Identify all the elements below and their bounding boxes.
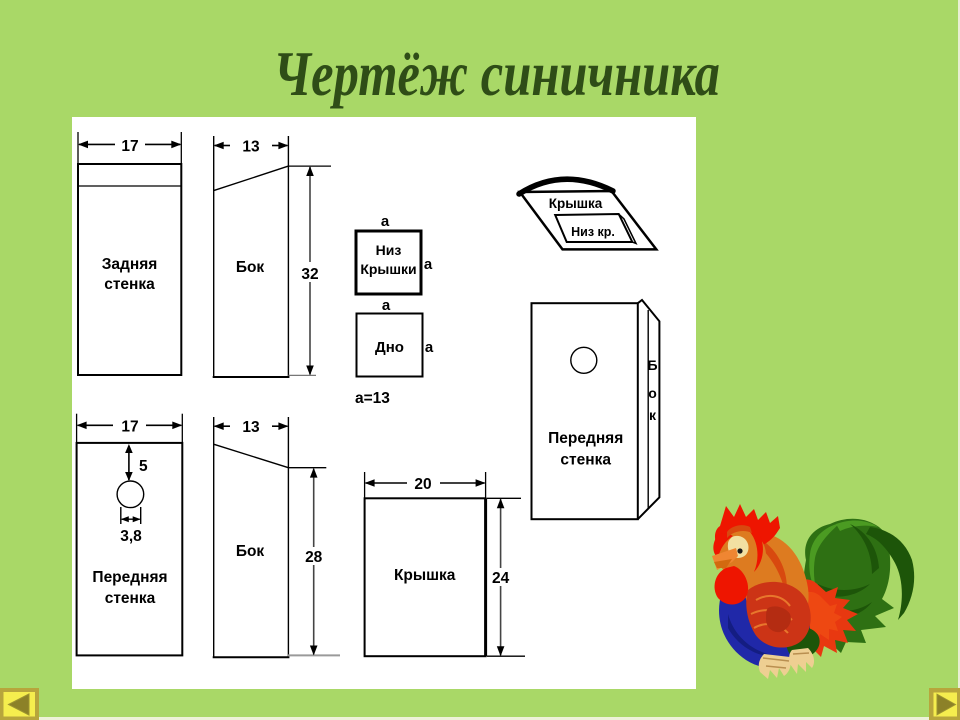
svg-text:Задняя: Задняя	[102, 256, 158, 273]
svg-text:а: а	[381, 213, 390, 230]
svg-text:а: а	[424, 256, 433, 273]
svg-text:Передняя: Передняя	[548, 430, 623, 447]
svg-text:стенка: стенка	[104, 276, 155, 293]
svg-text:о: о	[648, 385, 657, 401]
svg-text:32: 32	[301, 266, 318, 283]
svg-text:17: 17	[121, 419, 138, 436]
svg-text:к: к	[649, 407, 657, 423]
svg-text:Крышка: Крышка	[394, 567, 456, 584]
svg-text:13: 13	[242, 419, 260, 436]
svg-text:Передняя: Передняя	[92, 569, 167, 586]
svg-text:а: а	[382, 297, 391, 314]
svg-text:стенка: стенка	[105, 590, 156, 607]
svg-text:Низ кр.: Низ кр.	[571, 225, 615, 239]
svg-text:24: 24	[492, 570, 510, 587]
svg-text:а=13: а=13	[355, 390, 390, 407]
svg-text:Дно: Дно	[375, 339, 404, 356]
svg-text:17: 17	[121, 138, 138, 155]
svg-text:Крышка: Крышка	[549, 196, 603, 211]
svg-text:13: 13	[242, 139, 260, 156]
svg-text:Бок: Бок	[236, 259, 265, 276]
svg-text:28: 28	[305, 549, 323, 566]
svg-text:Б: Б	[647, 357, 657, 373]
svg-text:Низ: Низ	[376, 242, 402, 258]
svg-text:5: 5	[139, 458, 148, 475]
svg-text:20: 20	[414, 476, 431, 493]
svg-text:а: а	[425, 339, 434, 356]
svg-text:Крышки: Крышки	[360, 261, 416, 277]
svg-text:стенка: стенка	[560, 452, 611, 469]
svg-text:3,8: 3,8	[120, 528, 142, 545]
svg-text:Бок: Бок	[236, 543, 265, 560]
